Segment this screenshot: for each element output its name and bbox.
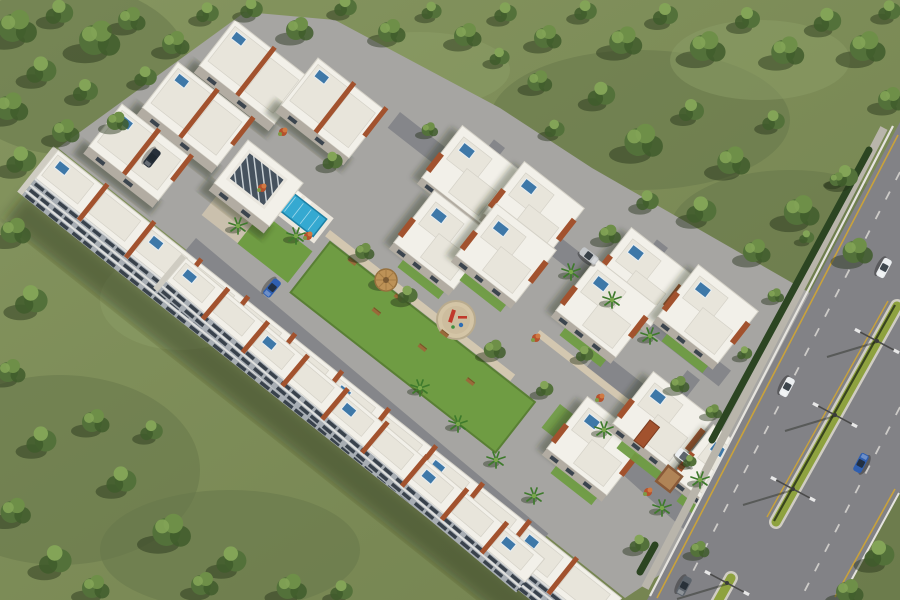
scene-canvas — [0, 0, 900, 600]
climber — [458, 316, 467, 319]
aerial-render-image — [0, 0, 900, 600]
